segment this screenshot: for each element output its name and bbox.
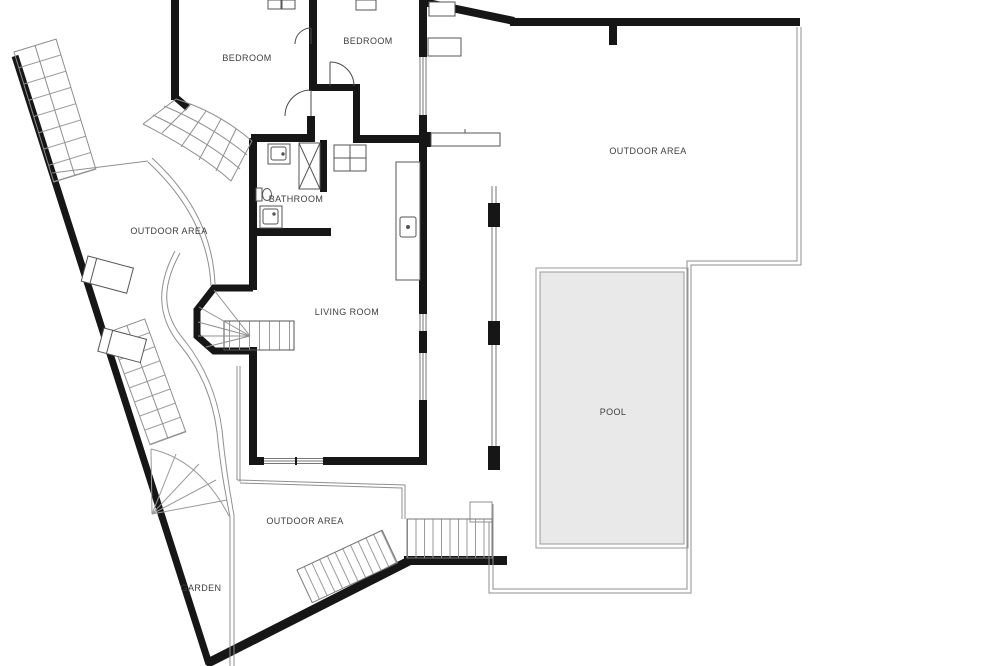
- outdoor-furniture: [81, 2, 500, 363]
- bedroom-divider-wall: [309, 0, 317, 88]
- kitchen-counter: [396, 162, 420, 280]
- label-garden: GARDEN: [181, 583, 222, 593]
- bedroom1-shelf-b: [282, 0, 295, 9]
- label-bedroom-2: BEDROOM: [343, 36, 392, 46]
- floor-plan-drawing: BEDROOM BEDROOM BATHROOM OUTDOOR AREA LI…: [0, 0, 1000, 666]
- bathroom-sink-1: [268, 144, 290, 164]
- bedroom2-bottom-wall: [353, 135, 427, 143]
- living-east-window-1: [418, 314, 428, 331]
- bedroom1-shelf-a: [268, 0, 281, 9]
- bathroom-left-wall: [249, 138, 257, 236]
- label-bedroom-1: BEDROOM: [222, 53, 271, 63]
- bathroom-bottom-wall: [249, 228, 331, 236]
- kitchen-cabinet: [334, 145, 366, 171]
- label-outdoor-northeast: OUTDOOR AREA: [609, 146, 686, 156]
- house-walls: [171, 0, 431, 465]
- label-bathroom: BATHROOM: [269, 194, 324, 204]
- deck-stairs-horizontal: [407, 519, 492, 558]
- wall-top-horizontal: [510, 18, 800, 26]
- label-outdoor-south: OUTDOOR AREA: [266, 516, 343, 526]
- hall-right-wall: [353, 84, 360, 143]
- exterior-stairs-upper: [14, 39, 96, 182]
- bedroom2-shelf: [356, 0, 376, 10]
- railing-post-1: [488, 203, 500, 227]
- interior-stairs: [198, 290, 294, 350]
- label-pool: POOL: [600, 407, 627, 417]
- living-east-window-2: [418, 353, 428, 400]
- living-west-wall-upper: [249, 232, 257, 290]
- bathroom-top-wall: [251, 134, 311, 142]
- bathroom-fixtures: [256, 143, 320, 228]
- railing-post-2: [488, 321, 500, 345]
- curved-bay-fan: [143, 99, 252, 181]
- deck-chair: [429, 2, 455, 16]
- bathroom-right-wall: [320, 140, 327, 192]
- bedroom-furniture: [268, 0, 376, 10]
- bedroom1-west-wall: [171, 0, 179, 100]
- kitchen-fixtures: [334, 145, 420, 280]
- living-south-window: [264, 457, 323, 465]
- deck-railing: [488, 186, 500, 470]
- bedroom1-door: [285, 90, 311, 116]
- bedroom2-door: [330, 62, 354, 86]
- deck-table: [428, 38, 461, 56]
- label-outdoor-west: OUTDOOR AREA: [130, 226, 207, 236]
- winder-stairs-garden: [151, 449, 229, 516]
- living-west-wall-lower: [249, 347, 257, 465]
- hall-top-wall: [309, 84, 360, 91]
- bathroom-sink-2: [260, 206, 282, 228]
- bedroom2-east-window: [418, 57, 428, 115]
- east-wall-corner-block: [419, 132, 431, 147]
- wall-top-stub: [609, 26, 617, 45]
- walkway-edge-inner: [152, 158, 215, 284]
- floor-plan-page: BEDROOM BEDROOM BATHROOM OUTDOOR AREA LI…: [0, 0, 1000, 666]
- label-living-room: LIVING ROOM: [315, 307, 379, 317]
- railing-post-3: [488, 446, 500, 470]
- terrace-edge-top2: [240, 483, 402, 519]
- bedroom1-closet-door: [295, 28, 311, 44]
- shower: [299, 143, 320, 189]
- deck-bench: [431, 129, 500, 146]
